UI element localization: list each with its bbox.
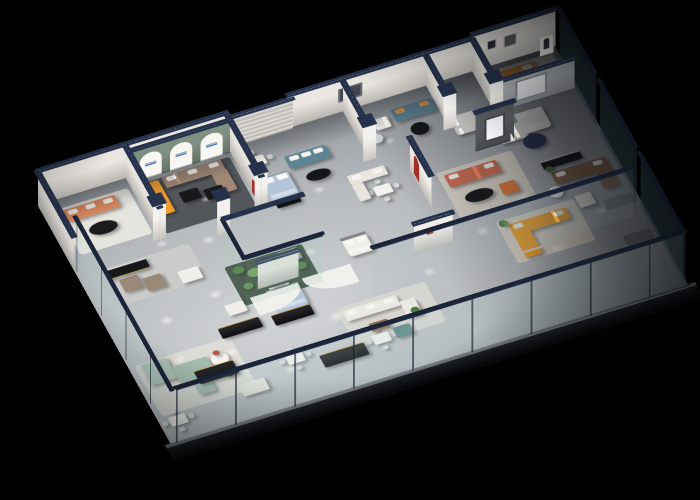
- floor: [38, 47, 689, 447]
- sofa-white-a-pillow: [383, 297, 395, 304]
- showroom-render: [0, 0, 700, 500]
- spotlight-glow-15: [308, 182, 330, 197]
- tv-feature-wall-screen: [486, 115, 503, 140]
- back-wall-corner-frame-1: [487, 39, 496, 51]
- sofa-cream-u1-pillow: [351, 174, 363, 181]
- coffee-table-oval-3: [304, 166, 333, 183]
- dining-set-2-table: [372, 183, 394, 197]
- right-bedroom-wall-window: [517, 74, 545, 100]
- standee-person-poster-figure: [544, 38, 550, 54]
- back-wall-corner-frame-2: [504, 33, 517, 48]
- sofa-white-a-pillow: [346, 309, 358, 316]
- dining-set-2-chair-4: [383, 196, 391, 202]
- dining-set-2-chair-3: [374, 178, 382, 184]
- sofa-cream-u1-pillow: [371, 168, 383, 175]
- pillar-3-front: [363, 123, 376, 162]
- sofa-white-a-pillow: [365, 303, 377, 310]
- pillar-4-front: [443, 92, 456, 131]
